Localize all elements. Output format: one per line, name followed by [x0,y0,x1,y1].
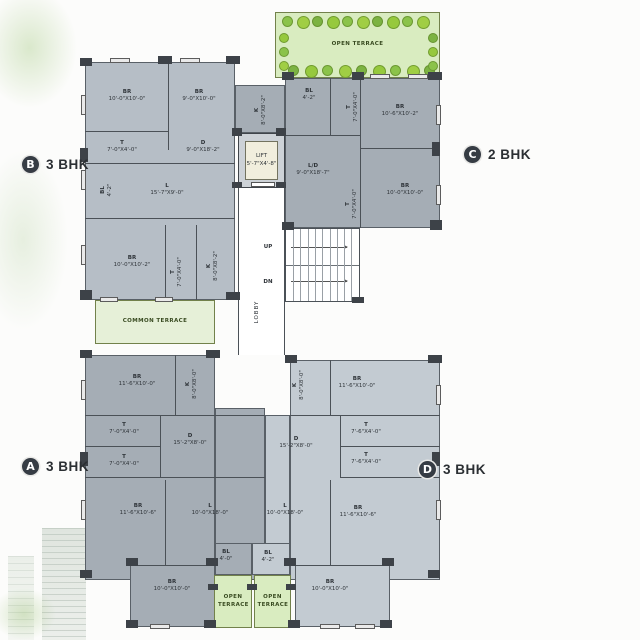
unit-d-area [295,565,390,627]
interior-wall [85,163,235,164]
room-dimension: 15'-7"X9'-0" [150,190,183,197]
room-label-d-t: T7'-6"X4'-0" [351,422,381,436]
interior-wall [290,415,440,416]
wall-column [276,182,286,188]
room-name: BL [219,549,232,556]
room-dimension: 10'-0"X10'-0" [109,96,146,103]
interior-wall [85,477,265,478]
window-marker [81,500,86,520]
stair-tread-line [351,229,352,301]
room-label-d-l: L10'-0"X18'-0" [267,503,304,517]
room-dimension: 15'-2"X8'-0" [279,443,312,450]
tree-icon [428,47,438,57]
room-label-a-t: T7'-0"X4'-0" [109,454,139,468]
interior-wall [85,218,235,219]
room-name: D [186,140,219,147]
room-label-a-k: K8'-0"X8'-0" [185,369,199,399]
tree-icon [428,33,438,43]
wall-column [226,56,240,64]
interior-wall [168,62,169,150]
wall-column [126,558,138,566]
room-dimension: 10'-0"X10'-2" [114,262,151,269]
tree-icon [342,16,353,27]
room-name: T [346,92,353,122]
window-marker [408,74,428,79]
room-label-b-k: K8'-0"X8'-2" [206,251,220,281]
floor-plan-canvas: LIFT 5'-7"X4'-8" UP DN LOBBY OPEN TERRAC… [0,0,640,640]
room-dimension: 8'-0"X8'-2" [261,95,268,125]
room-label-b-d: D9'-0"X18'-2" [186,140,219,154]
stair-tread-line [344,229,345,301]
unit-a-area [130,565,215,627]
room-name: D [279,436,312,443]
room-name: BR [120,503,157,510]
interior-wall [360,78,361,228]
wall-column [126,620,138,628]
room-label-c-bl: BL4'-2" [302,88,315,102]
room-dimension: 11'-6"X10'-0" [119,381,156,388]
room-dimension: 9'-0"X18'-7" [296,170,329,177]
room-dimension: 10'-0"X18'-0" [192,510,229,517]
floor-plan: LIFT 5'-7"X4'-8" UP DN LOBBY OPEN TERRAC… [0,0,640,640]
room-label-d-br: BR10'-0"X10'-0" [312,579,349,593]
unit-d-area [290,360,440,580]
unit-type-label: 3 BHK [443,462,486,477]
window-marker [81,95,86,115]
room-name: L [192,503,229,510]
wall-column [288,620,300,628]
room-dimension: 10'-0"X10'-0" [387,190,424,197]
wall-column [80,290,92,300]
room-dimension: 7'-0"X4'-0" [109,461,139,468]
room-label-b-br: BR9'-0"X10'-0" [182,89,215,103]
room-label-a-br: BR11'-6"X10'-6" [120,503,157,517]
terrace-common-terrace-1: COMMON TERRACE [95,300,215,344]
room-label-b-br: BR10'-0"X10'-2" [114,255,151,269]
unit-badge-d: D3 BHK [419,461,486,478]
staircase [285,228,360,302]
room-label-b-l: L15'-7"X9'-0" [150,183,183,197]
room-name: BR [154,579,191,586]
room-label-b-bl: BL4'-2" [100,183,114,196]
window-marker [81,170,86,190]
tree-icon [282,16,293,27]
room-label-d-d: D15'-2"X8'-0" [279,436,312,450]
window-marker [355,624,375,629]
room-name: T [351,452,381,459]
window-marker [436,500,441,520]
unit-type-label: 3 BHK [46,459,89,474]
room-label-b-t: T7'-0"X4'-0" [170,257,184,287]
room-name: BL [100,183,107,196]
window-marker [150,624,170,629]
interior-wall [340,446,440,447]
window-marker [370,74,390,79]
room-dimension: 10'-0"X10'-0" [312,586,349,593]
unit-letter-badge: D [419,461,436,478]
room-label-d-br: BR11'-6"X10'-6" [340,505,377,519]
tree-icon [279,61,289,71]
room-label-d-bl: BL4'-2" [261,550,274,564]
room-name: BL [261,550,274,557]
wall-column [80,570,92,578]
interior-wall [165,480,166,565]
wall-column [352,297,364,303]
unit-badge-c: C2 BHK [464,146,531,163]
unit-badge-b: B3 BHK [22,156,89,173]
wall-column [204,620,216,628]
room-dimension: 7'-0"X4'-0" [109,429,139,436]
lift-label: LIFT [256,153,267,160]
interior-wall [85,131,169,132]
window-marker [155,297,173,302]
room-name: BR [114,255,151,262]
room-dimension: 15'-2"X8'-0" [173,440,206,447]
stair-tread-line [293,229,294,301]
wall-column [380,620,392,628]
room-label-c-t: T7'-0"X4'-0" [345,189,359,219]
wall-column [226,292,240,300]
room-label-a-t: T7'-0"X4'-0" [109,422,139,436]
room-dimension: 7'-6"X4'-0" [351,429,381,436]
stair-tread-line [300,229,301,301]
lift-cab: LIFT 5'-7"X4'-8" [245,141,278,180]
stair-tread-line [337,229,338,301]
terrace-open-terrace-2: OPEN TERRACE [214,575,252,628]
lift-door [251,182,275,187]
tree-icon [402,16,413,27]
room-dimension: 11'-6"X10'-6" [340,512,377,519]
room-name: T [109,422,139,429]
interior-wall [295,565,390,566]
room-label-b-t: T7'-0"X4'-0" [107,140,137,154]
tree-icon [327,16,340,29]
room-name: BR [340,505,377,512]
wall-column [352,72,364,80]
interior-wall [285,135,361,136]
interior-wall [196,225,197,300]
wall-column [158,56,172,64]
window-marker [110,58,130,63]
tree-icon [305,65,318,78]
wall-column [247,584,257,590]
room-dimension: 11'-6"X10'-6" [120,510,157,517]
room-name: BR [109,89,146,96]
room-label-c-ld: L/D9'-0"X18'-7" [296,163,329,177]
window-marker [436,105,441,125]
wall-column [232,128,242,136]
tree-icon [279,47,289,57]
stair-tread-line [315,229,316,301]
interior-wall [330,78,331,135]
wall-column [282,72,294,80]
room-dimension: 11'-6"X10'-0" [339,383,376,390]
tree-icon [387,16,400,29]
unit-badge-a: A3 BHK [22,458,89,475]
room-label-c-t: T7'-0"X4'-0" [346,92,360,122]
room-name: T [351,422,381,429]
room-dimension: 8'-0"X8'-0" [192,369,199,399]
room-name: BR [387,183,424,190]
room-dimension: 4'-2" [302,95,315,102]
interior-wall [85,415,265,416]
terrace-label: COMMON TERRACE [123,318,187,326]
room-dimension: 7'-0"X4'-0" [353,92,360,122]
room-label-b-br: BR10'-0"X10'-0" [109,89,146,103]
tree-icon [417,16,430,29]
room-name: K [254,95,261,125]
wall-column [382,558,394,566]
room-label-a-bl: BL4'-0" [219,549,232,563]
stair-tread-line [322,229,323,301]
window-marker [436,185,441,205]
wall-column [428,570,440,578]
room-dimension: 7'-6"X4'-0" [351,459,381,466]
room-label-c-br: BR10'-6"X10'-2" [382,104,419,118]
wall-column [432,142,440,156]
tree-icon [357,16,370,29]
room-name: T [345,189,352,219]
room-name: BR [182,89,215,96]
room-label-c-k: K8'-0"X8'-2" [254,95,268,125]
room-name: BR [119,374,156,381]
lift-shaft: LIFT 5'-7"X4'-8" [238,133,285,188]
terrace-label: OPEN TERRACE [258,594,288,609]
wall-column [286,584,296,590]
stair-tread-line [330,229,331,301]
stair-up-label: UP [264,244,273,250]
room-label-a-d: D15'-2"X8'-0" [173,433,206,447]
room-dimension: 10'-0"X18'-0" [267,510,304,517]
terrace-label: OPEN TERRACE [332,41,384,49]
terrace-open-terrace-3: OPEN TERRACE [254,575,291,628]
tree-icon [279,33,289,43]
room-name: K [185,369,192,399]
interior-wall [330,360,331,415]
room-label-d-k: K8'-0"X8'-0" [292,370,306,400]
room-label-d-t: T7'-6"X4'-0" [351,452,381,466]
room-dimension: 10'-6"X10'-2" [382,111,419,118]
room-dimension: 4'-0" [219,556,232,563]
wall-column [232,182,242,188]
wall-column [282,222,294,230]
room-name: T [109,454,139,461]
room-name: K [292,370,299,400]
room-dimension: 7'-0"X4'-0" [107,147,137,154]
tree-icon [428,61,438,71]
interior-wall [130,565,215,566]
lobby-label: LOBBY [254,301,260,324]
terrace-label: OPEN TERRACE [218,594,248,609]
wall-column [285,355,297,363]
stair-tread-line [308,229,309,301]
unit-type-label: 3 BHK [46,157,89,172]
tree-icon [372,16,383,27]
tree-icon [312,16,323,27]
room-dimension: 10'-0"X10'-0" [154,586,191,593]
terrace-open-terrace-0: OPEN TERRACE [275,12,440,78]
window-marker [81,380,86,400]
room-name: BR [312,579,349,586]
wall-column [430,220,442,230]
wall-column [428,355,442,363]
unit-type-label: 2 BHK [488,147,531,162]
window-marker [180,58,200,63]
window-marker [81,245,86,265]
room-name: K [206,251,213,281]
window-marker [100,297,118,302]
wall-column [80,58,92,66]
room-name: BL [302,88,315,95]
room-name: T [107,140,137,147]
wall-column [206,558,218,566]
room-name: L/D [296,163,329,170]
room-dimension: 4'-2" [261,557,274,564]
unit-letter-badge: C [464,146,481,163]
room-label-a-br: BR11'-6"X10'-0" [119,374,156,388]
unit-letter-badge: A [22,458,39,475]
tree-icon [390,65,401,76]
wall-column [284,558,296,566]
lobby-corridor [238,188,285,355]
room-dimension: 8'-0"X8'-2" [213,251,220,281]
tree-icon [322,65,333,76]
room-dimension: 8'-0"X8'-0" [299,370,306,400]
window-marker [436,385,441,405]
room-name: L [150,183,183,190]
room-name: L [267,503,304,510]
stair-down-label: DN [263,279,272,285]
interior-wall [360,148,440,149]
interior-wall [330,480,331,565]
wall-column [276,128,286,136]
room-dimension: 9'-0"X10'-0" [182,96,215,103]
interior-wall [175,355,176,415]
window-marker [320,624,340,629]
tree-icon [339,65,352,78]
room-label-c-br: BR10'-0"X10'-0" [387,183,424,197]
interior-wall [165,225,166,300]
room-dimension: 4'-2" [107,183,114,196]
room-name: BR [382,104,419,111]
room-label-a-br: BR10'-0"X10'-0" [154,579,191,593]
room-name: T [170,257,177,287]
tree-icon [297,16,310,29]
wall-column [206,350,220,358]
wall-column [80,350,92,358]
room-dimension: 7'-0"X4'-0" [352,189,359,219]
lift-dimension: 5'-7"X4'-8" [247,161,277,168]
room-name: D [173,433,206,440]
room-label-d-br: BR11'-6"X10'-0" [339,376,376,390]
wall-column [208,584,218,590]
room-name: BR [339,376,376,383]
unit-letter-badge: B [22,156,39,173]
room-dimension: 7'-0"X4'-0" [177,257,184,287]
interior-wall [85,446,161,447]
room-label-a-l: L10'-0"X18'-0" [192,503,229,517]
room-dimension: 9'-0"X18'-2" [186,147,219,154]
wall-column [428,72,442,80]
